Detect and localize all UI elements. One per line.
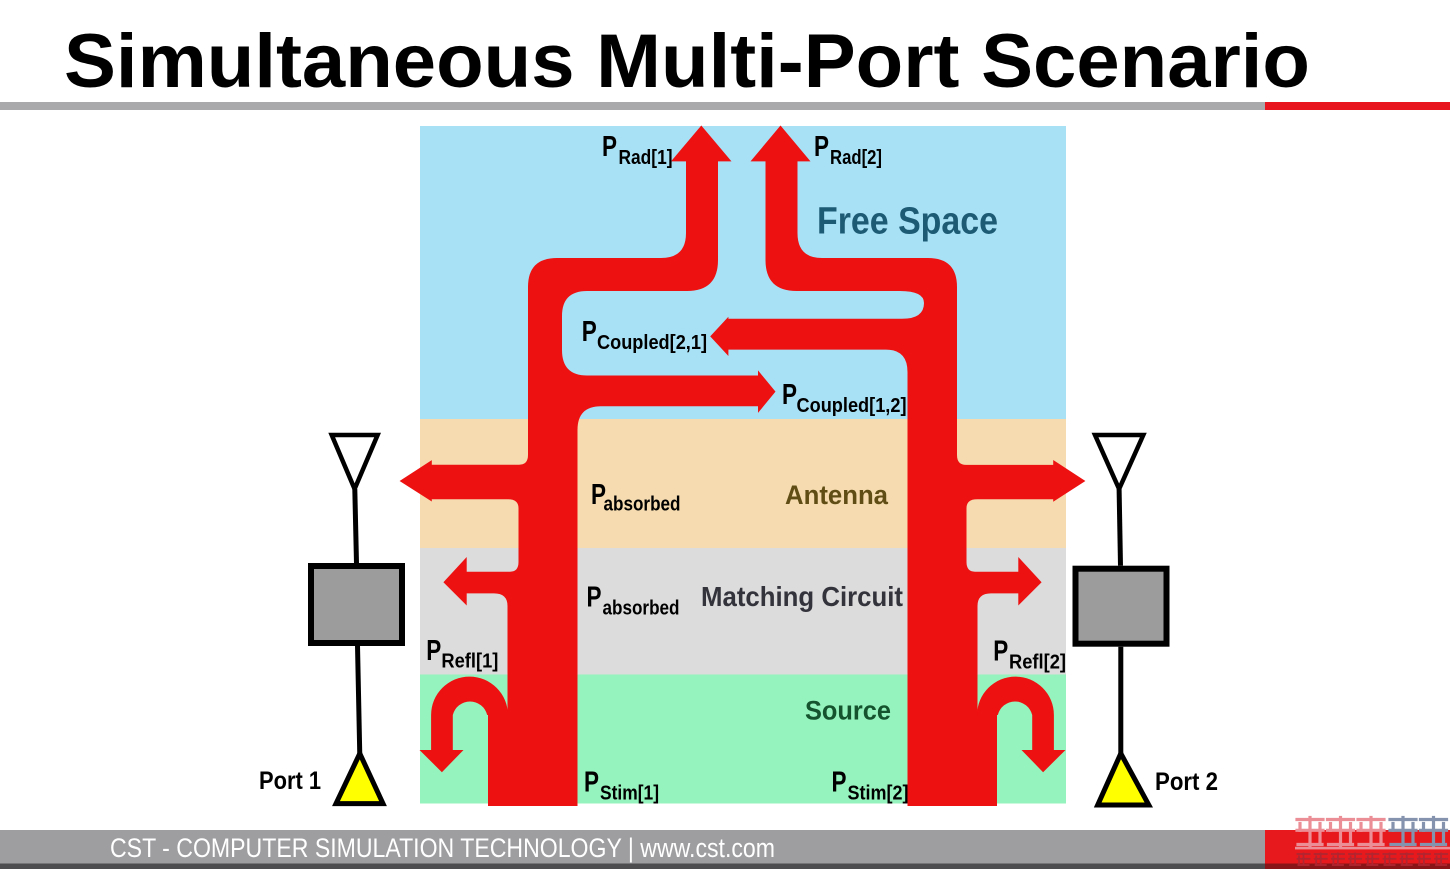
svg-text:Port 2: Port 2 (1155, 768, 1218, 796)
svg-text:P: P (426, 635, 441, 667)
svg-text:Port 1: Port 1 (259, 767, 321, 795)
svg-text:P: P (814, 131, 829, 163)
svg-text:Refl[2]: Refl[2] (1009, 651, 1066, 673)
svg-text:Simultaneous Multi-Port Scenar: Simultaneous Multi-Port Scenario (64, 19, 1310, 104)
svg-text:Antenna: Antenna (785, 480, 889, 510)
svg-text:Source: Source (805, 696, 891, 726)
svg-text:P: P (587, 582, 602, 614)
svg-text:P: P (584, 767, 599, 799)
svg-text:Free Space: Free Space (817, 201, 998, 243)
svg-text:Stim[2]: Stim[2] (848, 783, 909, 805)
svg-text:Refl[1]: Refl[1] (441, 651, 498, 673)
svg-text:Coupled[1,2]: Coupled[1,2] (797, 395, 907, 417)
svg-text:Matching Circuit: Matching Circuit (701, 581, 903, 612)
svg-text:Coupled[2,1]: Coupled[2,1] (597, 332, 707, 354)
svg-text:P: P (832, 767, 847, 799)
svg-text:P: P (782, 379, 797, 411)
svg-text:CST - COMPUTER SIMULATION TECH: CST - COMPUTER SIMULATION TECHNOLOGY | w… (110, 833, 775, 863)
svg-text:Rad[1]: Rad[1] (619, 147, 673, 169)
svg-text:Stim[1]: Stim[1] (600, 783, 659, 805)
svg-text:absorbed: absorbed (603, 598, 680, 620)
svg-text:P: P (582, 316, 597, 348)
svg-text:P: P (993, 636, 1008, 668)
svg-text:P: P (602, 131, 617, 163)
svg-text:Rad[2]: Rad[2] (830, 147, 882, 169)
svg-text:absorbed: absorbed (604, 494, 681, 516)
